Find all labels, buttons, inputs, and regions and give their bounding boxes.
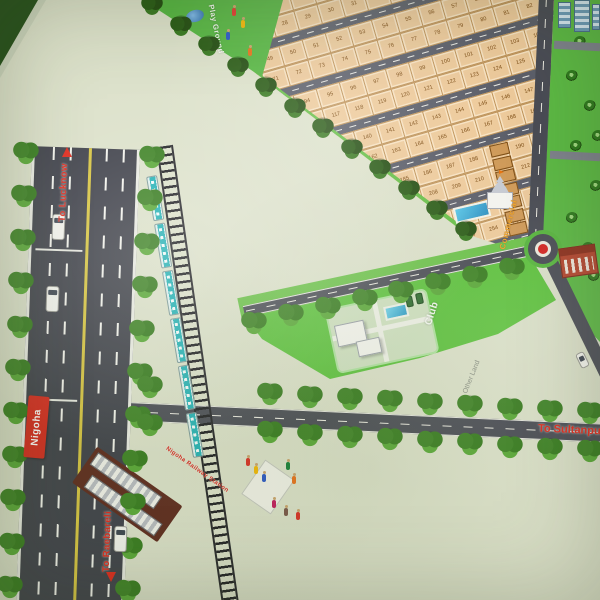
palm-tree-icon [499, 255, 525, 281]
plot-number: 52 [336, 36, 343, 43]
plot-number: 119 [377, 98, 387, 106]
palm-tree-icon [577, 437, 600, 463]
plot-number: 79 [457, 23, 464, 30]
plot-number: 229 [414, 225, 424, 233]
plot-number: 199 [221, 249, 231, 257]
palm-tree-icon [462, 263, 488, 289]
palm-tree-icon [537, 397, 563, 423]
plot-number: 74 [342, 56, 349, 63]
plot-cell: 133 [192, 170, 221, 197]
palm-tree-icon [315, 294, 341, 320]
plot-number: 135 [247, 167, 257, 175]
plot-number: 95 [327, 92, 334, 99]
plot-number: 98 [396, 72, 403, 79]
plot-cell: 202 [281, 220, 310, 247]
palm-tree-icon [417, 428, 443, 454]
plot-cell: 180 [275, 200, 304, 227]
swimming-pool-icon [383, 302, 409, 321]
plot-cell: 67 [170, 93, 199, 120]
palm-tree-icon [3, 399, 29, 425]
plot-number: 252 [442, 239, 452, 247]
palm-tree-icon [139, 143, 165, 169]
north-arrow-icon [62, 147, 72, 157]
palm-tree-icon [129, 317, 155, 343]
palm-tree-icon [122, 447, 148, 473]
plot-number: 45 [174, 82, 181, 89]
plot-cell: 137 [284, 144, 313, 171]
plot-number: 90 [211, 125, 218, 132]
plot-number: 111 [193, 151, 203, 159]
plot-number: 159 [299, 174, 309, 182]
plot-number: 204 [336, 216, 346, 224]
person-icon [272, 500, 276, 508]
palm-tree-icon [388, 278, 414, 304]
road-stub [35, 248, 82, 252]
plot-cell: 226 [336, 235, 365, 262]
boundary-tree-icon [254, 74, 278, 98]
plot-number: 91 [235, 118, 242, 125]
plot-number: 158 [276, 180, 286, 188]
plot-number: 112 [216, 145, 226, 153]
kid-icon [226, 32, 230, 40]
palm-tree-icon [137, 411, 163, 437]
plot-number: 144 [455, 107, 465, 115]
plot-cell: 181 [299, 193, 328, 220]
plot-number: 178 [238, 222, 248, 230]
person-icon [246, 458, 250, 466]
plot-number: 49 [267, 56, 274, 63]
highway-center-line [73, 148, 92, 600]
plot-number: 118 [354, 105, 364, 113]
palm-tree-icon [115, 577, 141, 600]
nigoha-sign-label: Nigoha [29, 408, 43, 446]
plot-number: 156 [230, 194, 240, 202]
plot-number: 200 [244, 243, 254, 251]
plot-number: 146 [501, 94, 511, 102]
bus-icon [46, 286, 60, 312]
plot-cell: 113 [230, 128, 259, 155]
plot-number: 121 [423, 85, 433, 93]
plot-number: 102 [487, 45, 497, 53]
plot-number: 115 [285, 125, 295, 133]
plot-cell: 224 [289, 249, 318, 276]
plot-number: 187 [446, 163, 456, 171]
plot-number: 143 [432, 114, 442, 122]
palm-tree-icon [257, 380, 283, 406]
plot-number: 46 [197, 76, 204, 83]
boundary-tree-icon [340, 136, 364, 160]
plot-number: 206 [382, 203, 392, 211]
plot-number: 97 [373, 79, 380, 86]
plot-number: 57 [451, 3, 458, 10]
kid-icon [232, 8, 236, 16]
plot-number: 177 [215, 229, 225, 237]
plot-number: 29 [304, 14, 311, 21]
tower-building-icon [574, 0, 590, 32]
boundary-tree-icon [226, 54, 250, 78]
plot-number: 224 [298, 258, 308, 266]
plot-number: 160 [322, 167, 332, 175]
boundary-tree-icon [197, 33, 221, 57]
plot-cell: 111 [184, 142, 213, 169]
palm-tree-icon [297, 383, 323, 409]
plot-cell: 228 [382, 222, 411, 249]
palm-tree-icon [11, 182, 37, 208]
palm-tree-icon [137, 186, 163, 212]
plot-number: 145 [478, 101, 488, 109]
bus-icon [114, 526, 128, 552]
plot-cell: 222 [243, 262, 272, 289]
plot-number: 124 [493, 65, 503, 73]
plot-cell: 221 [220, 269, 249, 296]
south-arrow-icon [106, 572, 116, 582]
plot-cell: 91 [224, 108, 253, 135]
plot-number: 181 [307, 203, 317, 211]
palm-tree-icon [457, 430, 483, 456]
boundary-tree-icon [140, 0, 164, 16]
plot-number: 222 [252, 272, 262, 280]
palm-tree-icon [241, 309, 267, 335]
park-tree-icon [592, 130, 600, 142]
boundary-tree-icon [283, 95, 307, 119]
roundabout-center [538, 244, 548, 254]
plot-number: 113 [239, 138, 249, 146]
plot-number: 122 [446, 78, 456, 86]
plot-number: 183 [353, 189, 363, 197]
kid-icon [241, 20, 245, 28]
plot-cell: 46 [187, 66, 216, 93]
plot-number: 28 [281, 21, 288, 28]
palm-tree-icon [352, 286, 378, 312]
plot-number: 51 [313, 43, 320, 50]
plot-number: 80 [480, 17, 487, 24]
plot-number: 202 [290, 229, 300, 237]
plot-number: 1 [162, 34, 166, 40]
plot-cell: 223 [266, 255, 295, 282]
plot-cell: 177 [206, 219, 235, 246]
plot-cell: 159 [290, 164, 319, 191]
boundary-tree-icon [169, 13, 193, 37]
plot-number: 78 [434, 30, 441, 37]
plot-cell: 156 [221, 184, 250, 211]
plot-cell: 134 [215, 164, 244, 191]
plot-number: 167 [484, 121, 494, 129]
person-icon [292, 476, 296, 484]
palm-tree-icon [537, 435, 563, 461]
plot-cell: 200 [235, 233, 264, 260]
plot-number: 75 [365, 50, 372, 57]
plot-number: 186 [423, 170, 433, 178]
plot-number: 99 [419, 65, 426, 72]
plot-number: 56 [428, 10, 435, 17]
palm-tree-icon [457, 392, 483, 418]
plot-cell: 68 [193, 86, 222, 113]
plot-number: 147 [524, 87, 534, 95]
plot-number: 53 [359, 30, 366, 37]
park-tree-icon [584, 100, 596, 112]
plot-cell: 158 [267, 171, 296, 198]
plot-number: 32 [374, 0, 381, 1]
plot-cell: 203 [304, 213, 333, 240]
palm-tree-icon [7, 313, 33, 339]
plot-number: 77 [411, 36, 418, 43]
plot-number: 31 [351, 1, 358, 8]
site-map: 1234567891011121314151617181920212223242… [0, 0, 600, 600]
plot-number: 228 [391, 232, 401, 240]
palm-tree-icon [134, 230, 160, 256]
palm-tree-icon [120, 490, 146, 516]
plot-cell: 179 [252, 206, 281, 233]
plot-cell: 23 [156, 44, 185, 71]
park-tree-icon [590, 180, 600, 192]
plot-number: 225 [321, 252, 331, 260]
plot-number: 254 [489, 226, 499, 234]
plot-number: 180 [284, 209, 294, 217]
plot-number: 58 [474, 0, 481, 3]
plot-number: 137 [293, 154, 303, 162]
plot-number: 92 [258, 112, 265, 119]
palm-tree-icon [497, 433, 523, 459]
plot-number: 81 [503, 10, 510, 17]
plot-cell: 135 [238, 157, 267, 184]
plot-cell: 201 [258, 226, 287, 253]
boundary-tree-icon [425, 197, 449, 221]
plot-number: 96 [350, 85, 357, 92]
plot-number: 250 [396, 252, 406, 260]
plot-number: 23 [166, 54, 173, 61]
palm-tree-icon [10, 226, 36, 252]
plot-number: 55 [405, 16, 412, 23]
tower-building-icon [558, 2, 571, 28]
plot-number: 69 [226, 89, 233, 96]
palm-tree-icon [257, 418, 283, 444]
plot-number: 76 [388, 43, 395, 50]
plot-cell: 182 [322, 186, 351, 213]
boundary-tree-icon [454, 218, 478, 242]
plot-number: 249 [373, 259, 383, 267]
plot-number: 67 [180, 103, 187, 110]
person-icon [286, 462, 290, 470]
palm-tree-icon [497, 395, 523, 421]
palm-tree-icon [297, 421, 323, 447]
plot-number: 82 [526, 3, 533, 10]
plot-cell: 89 [178, 121, 207, 148]
palm-tree-icon [8, 269, 34, 295]
plot-cell: 69 [216, 79, 245, 106]
plot-number: 141 [386, 127, 396, 135]
palm-tree-icon [137, 373, 163, 399]
person-icon [296, 512, 300, 520]
plot-number: 68 [203, 96, 210, 103]
plot-number: 89 [188, 131, 195, 138]
plot-number: 101 [464, 52, 474, 60]
plot-number: 210 [475, 177, 485, 185]
plot-number: 165 [437, 134, 447, 142]
plot-number: 24 [189, 47, 196, 54]
plot-number: 155 [207, 200, 217, 208]
palm-tree-icon [377, 387, 403, 413]
park-tree-icon [566, 212, 578, 224]
plot-cell: 205 [350, 200, 379, 227]
plot-number: 114 [262, 131, 272, 139]
plot-number: 226 [344, 245, 354, 253]
boundary-tree-icon [368, 156, 392, 180]
plot-cell: 115 [276, 115, 305, 142]
person-icon [262, 474, 266, 482]
clubhouse-icon [356, 337, 383, 358]
plot-number: 30 [328, 7, 335, 14]
plot-number: 184 [376, 183, 386, 191]
plot-number: 133 [201, 180, 211, 188]
plot-number: 103 [510, 38, 520, 46]
plot-number: 142 [409, 121, 419, 129]
plot-number: 209 [451, 183, 461, 191]
plot-number: 190 [515, 143, 525, 151]
plot-cell: 227 [359, 229, 388, 256]
palm-tree-icon [13, 139, 39, 165]
palm-tree-icon [132, 273, 158, 299]
to-lucknow-label: To Lucknow [57, 160, 70, 222]
plot-number: 168 [507, 114, 517, 122]
plot-cell: 90 [201, 115, 230, 142]
plot-number: 157 [253, 187, 263, 195]
plot-number: 138 [316, 147, 326, 155]
palm-tree-icon [0, 530, 25, 556]
plot-cell: 178 [229, 213, 258, 240]
plot-number: 100 [441, 58, 451, 66]
plot-number: 73 [319, 63, 326, 70]
other-land-label: Other Land [462, 360, 482, 395]
palm-tree-icon [337, 385, 363, 411]
plot-number: 120 [400, 92, 410, 100]
palm-tree-icon [377, 425, 403, 451]
park-tree-icon [566, 70, 578, 82]
plot-cell: 138 [308, 137, 337, 164]
palm-tree-icon [425, 270, 451, 296]
plot-cell: 183 [345, 180, 374, 207]
plot-number: 164 [414, 141, 424, 149]
plot-cell: 157 [244, 177, 273, 204]
plot-cell: 160 [313, 158, 342, 185]
palm-tree-icon [278, 301, 304, 327]
person-icon [284, 508, 288, 516]
park-tree-icon [570, 140, 582, 152]
plot-number: 251 [419, 245, 429, 253]
plot-number: 205 [359, 210, 369, 218]
palm-tree-icon [417, 390, 443, 416]
plot-cell: 204 [327, 207, 356, 234]
plot-number: 134 [224, 173, 234, 181]
plot-number: 223 [275, 265, 285, 273]
plot-number: 201 [267, 236, 277, 244]
plot-number: 136 [270, 160, 280, 168]
palm-tree-icon [0, 486, 26, 512]
boundary-tree-icon [311, 115, 335, 139]
plot-number: 54 [382, 23, 389, 30]
plot-number: 50 [290, 49, 297, 56]
plot-number: 227 [367, 238, 377, 246]
plot-cell: 136 [261, 151, 290, 178]
plot-cell: 92 [247, 102, 276, 129]
plot-cell: 225 [313, 242, 342, 269]
plot-cell: 45 [164, 72, 193, 99]
tower-building-icon [592, 4, 600, 30]
plot-number: 182 [330, 196, 340, 204]
plot-number: 163 [391, 147, 401, 155]
plot-cell: 114 [253, 122, 282, 149]
plot-number: 203 [313, 223, 323, 231]
school-building-icon [558, 244, 599, 279]
plot-cell: 199 [212, 240, 241, 267]
palm-tree-icon [577, 399, 600, 425]
plot-number: 179 [261, 216, 271, 224]
plot-number: 125 [516, 59, 526, 67]
plot-number: 212 [521, 163, 531, 171]
plot-number: 166 [461, 128, 471, 136]
palm-tree-icon [0, 573, 23, 599]
person-icon [254, 466, 258, 474]
plot-number: 161 [345, 161, 355, 169]
palm-tree-icon [5, 356, 31, 382]
plot-number: 123 [470, 72, 480, 80]
palm-tree-icon [337, 423, 363, 449]
boundary-tree-icon [397, 177, 421, 201]
plot-number: 221 [229, 278, 239, 286]
plot-number: 72 [295, 70, 302, 77]
plot-cell: 112 [207, 135, 236, 162]
plot-number: 188 [469, 156, 479, 164]
plot-cell: 155 [198, 191, 227, 218]
